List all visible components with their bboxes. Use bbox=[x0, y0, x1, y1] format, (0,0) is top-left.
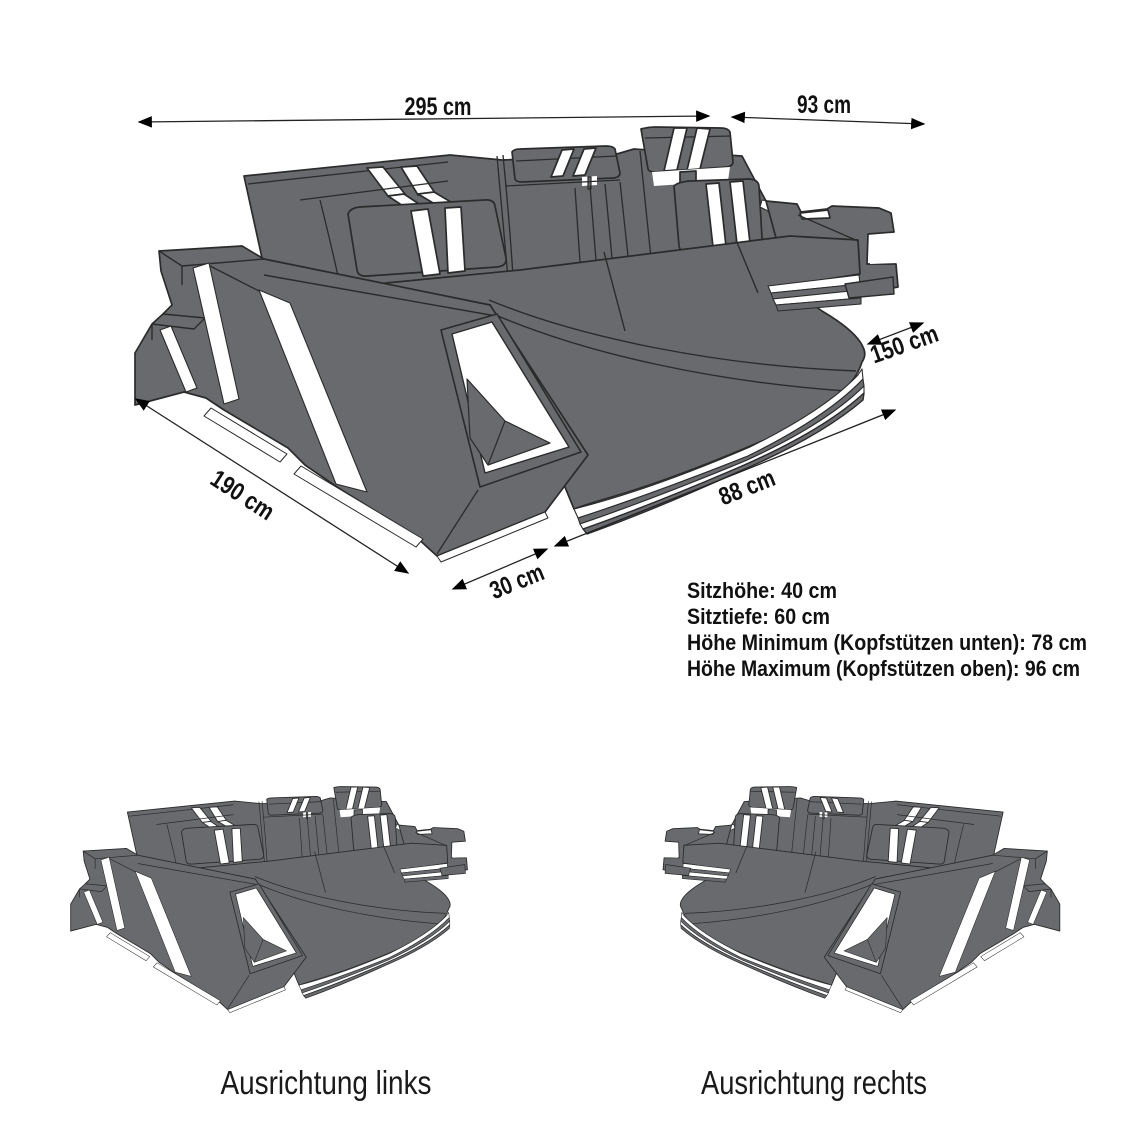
svg-text:Ausrichtung links: Ausrichtung links bbox=[221, 1064, 432, 1101]
svg-text:295 cm: 295 cm bbox=[405, 93, 472, 121]
svg-text:Höhe Minimum (Kopfstützen unte: Höhe Minimum (Kopfstützen unten): 78 cm bbox=[687, 630, 1087, 655]
svg-text:190 cm: 190 cm bbox=[205, 464, 279, 526]
svg-text:Höhe Maximum (Kopfstützen oben: Höhe Maximum (Kopfstützen oben): 96 cm bbox=[687, 656, 1080, 681]
svg-text:Sitztiefe: 60 cm: Sitztiefe: 60 cm bbox=[687, 604, 830, 629]
svg-text:30 cm: 30 cm bbox=[486, 558, 548, 605]
svg-text:Ausrichtung rechts: Ausrichtung rechts bbox=[701, 1064, 927, 1101]
svg-text:93 cm: 93 cm bbox=[797, 91, 851, 119]
svg-text:150 cm: 150 cm bbox=[867, 320, 942, 370]
svg-text:Sitzhöhe: 40 cm: Sitzhöhe: 40 cm bbox=[687, 578, 837, 603]
